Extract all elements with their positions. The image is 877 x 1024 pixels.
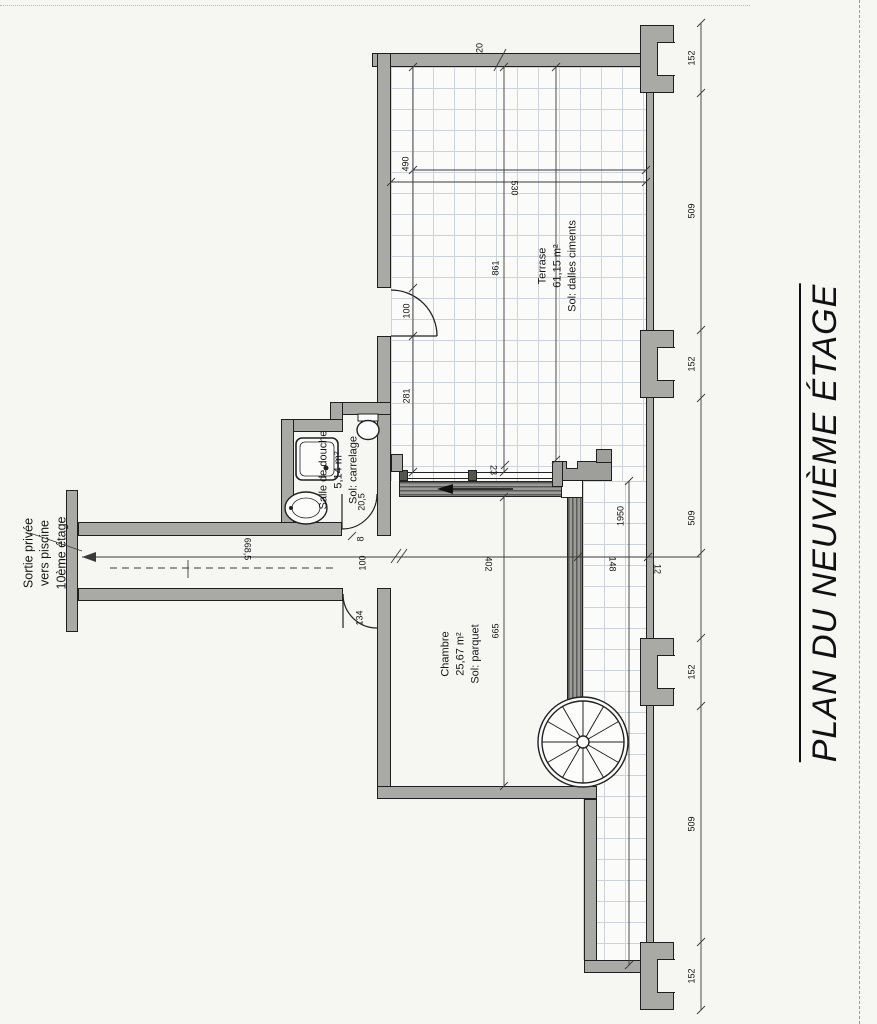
floorplan-sheet: Terrase 61,15 m² Sol: dalles ciments Sal… — [0, 0, 877, 1024]
bedroom-floor: Sol: parquet — [468, 624, 483, 683]
terrace-floor: Sol: dalles ciments — [565, 220, 580, 312]
room-label-shower: Salle de douche 5,14 m² Sol: carrelage — [317, 431, 362, 510]
door-terrace — [391, 290, 437, 336]
plan-linework — [0, 0, 877, 1024]
dim-shower-door: 20,5 — [358, 493, 367, 511]
dim-wall-top: 20 — [476, 43, 485, 53]
dim-facade-2: 509 — [688, 203, 697, 218]
slide-direction-arrow — [437, 484, 513, 494]
dim-terrace-width-inner: 490 — [402, 156, 411, 171]
shower-area: 5,14 m² — [332, 431, 347, 510]
dim-wall-segment: 281 — [403, 388, 412, 403]
dim-wall-thickness: 12 — [653, 564, 662, 574]
dim-facade-5: 152 — [688, 664, 697, 679]
exit-line-1: Sortie privée — [21, 517, 37, 590]
dim-door-clearance: 134 — [356, 610, 365, 625]
room-label-terrace: Terrase 61,15 m² Sol: dalles ciments — [536, 220, 581, 312]
axis-arrowhead — [82, 552, 96, 562]
bedroom-area: 25,67 m² — [454, 624, 469, 683]
dim-facade-6: 509 — [688, 816, 697, 831]
dim-corridor-length: 668,5 — [243, 538, 252, 561]
dim-facade-4: 509 — [688, 510, 697, 525]
bedroom-name: Chambre — [439, 624, 454, 683]
dim-track: 23 — [489, 465, 498, 475]
dimension-lines — [30, 19, 705, 1014]
dim-facade-3: 152 — [688, 356, 697, 371]
dim-facade-7: 152 — [688, 968, 697, 983]
dim-bedroom-depth: 665 — [492, 623, 501, 638]
dim-strip-width: 148 — [608, 556, 617, 571]
shower-name: Salle de douche — [317, 431, 332, 510]
dim-terrace-width: 530 — [510, 180, 519, 195]
dim-facade-1: 152 — [688, 50, 697, 65]
dim-gap: 8 — [357, 536, 366, 541]
room-label-bedroom: Chambre 25,67 m² Sol: parquet — [439, 624, 484, 683]
plan-title-text: PLAN DU NEUVIÈME ÉTAGE — [799, 284, 845, 763]
dim-terrace-door: 100 — [403, 303, 412, 318]
dim-terrace-depth: 861 — [492, 260, 501, 275]
exit-line-2: vers piscine — [37, 517, 53, 590]
terrace-name: Terrase — [536, 220, 551, 312]
exit-annotation: Sortie privée vers piscine 10ème étage — [21, 517, 70, 590]
dim-bedroom-door: 100 — [359, 555, 368, 570]
terrace-area: 61,15 m² — [551, 220, 566, 312]
spiral-staircase-icon — [538, 697, 628, 787]
exit-line-3: 10ème étage — [53, 517, 69, 590]
dim-strip-length: 1950 — [617, 506, 626, 526]
dim-bedroom-width: 402 — [484, 556, 493, 571]
